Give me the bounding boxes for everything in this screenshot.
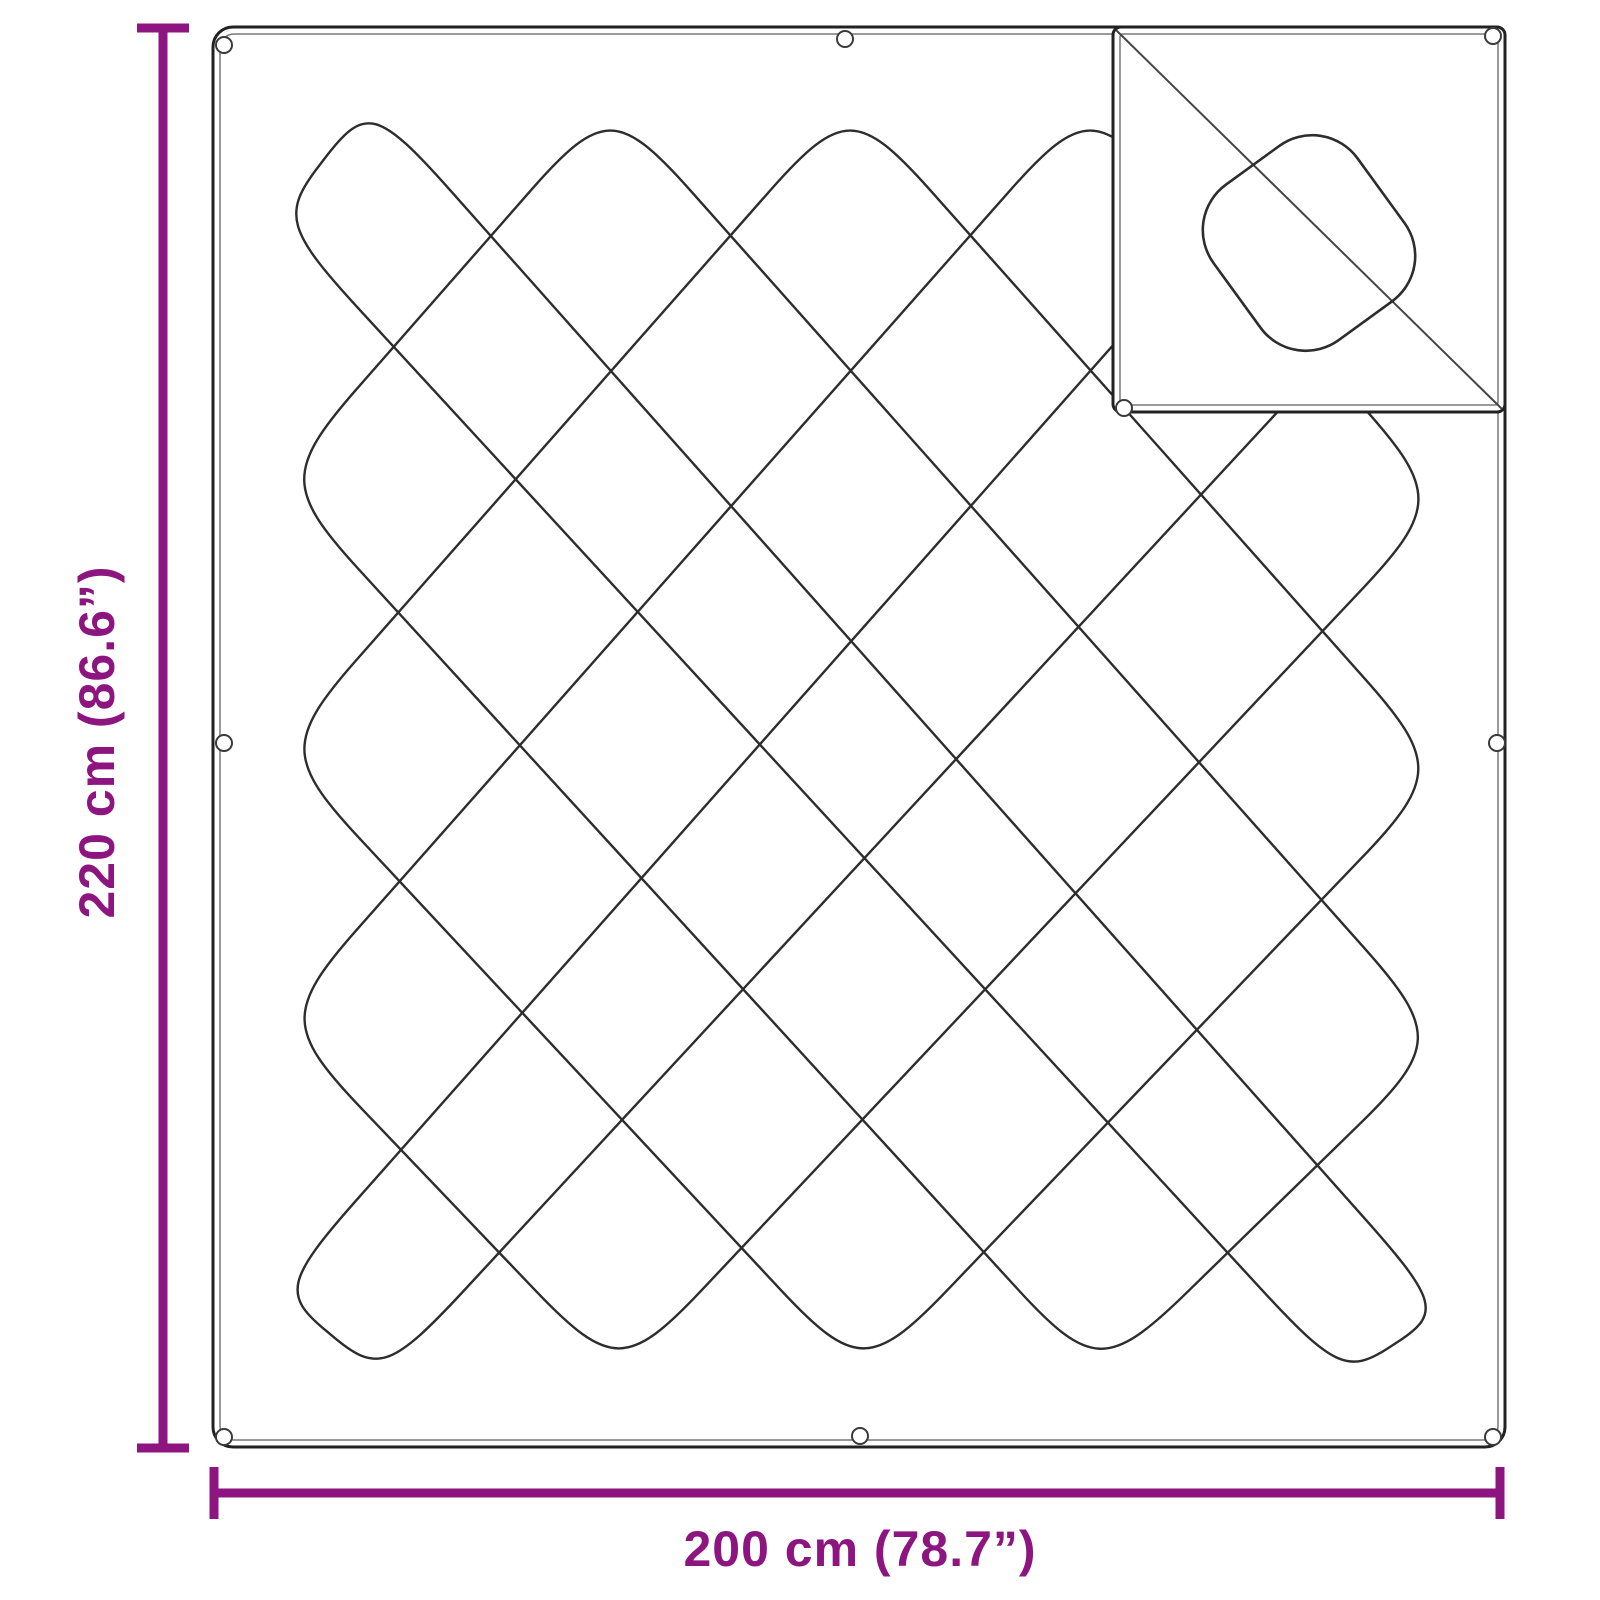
corner-detail-inset — [1113, 27, 1505, 416]
grommet-icon — [852, 1428, 868, 1444]
height-dimension-bottom-cap — [137, 1444, 189, 1453]
grommet-icon — [1485, 1429, 1501, 1445]
grommet-icon — [216, 37, 232, 53]
width-dimension-right-cap — [1496, 1467, 1505, 1519]
width-dimension-label: 200 cm (78.7”) — [683, 1521, 1036, 1577]
grommet-icon — [216, 1429, 232, 1445]
width-dimension-left-cap — [210, 1467, 219, 1519]
height-dimension-top-cap — [137, 24, 189, 33]
dimension-diagram-stage: 220 cm (86.6”) 200 cm (78.7”) — [0, 0, 1600, 1600]
grommet-icon — [1485, 28, 1501, 44]
width-dimension-line — [214, 1489, 1500, 1498]
grommet-icon — [1489, 735, 1505, 751]
height-dimension-label: 220 cm (86.6”) — [69, 565, 125, 918]
grommet-icon — [216, 735, 232, 751]
grommet-icon — [1116, 400, 1132, 416]
height-dimension-line — [159, 28, 168, 1448]
grommet-icon — [837, 31, 853, 47]
dimension-diagram: 220 cm (86.6”) 200 cm (78.7”) — [0, 0, 1600, 1600]
